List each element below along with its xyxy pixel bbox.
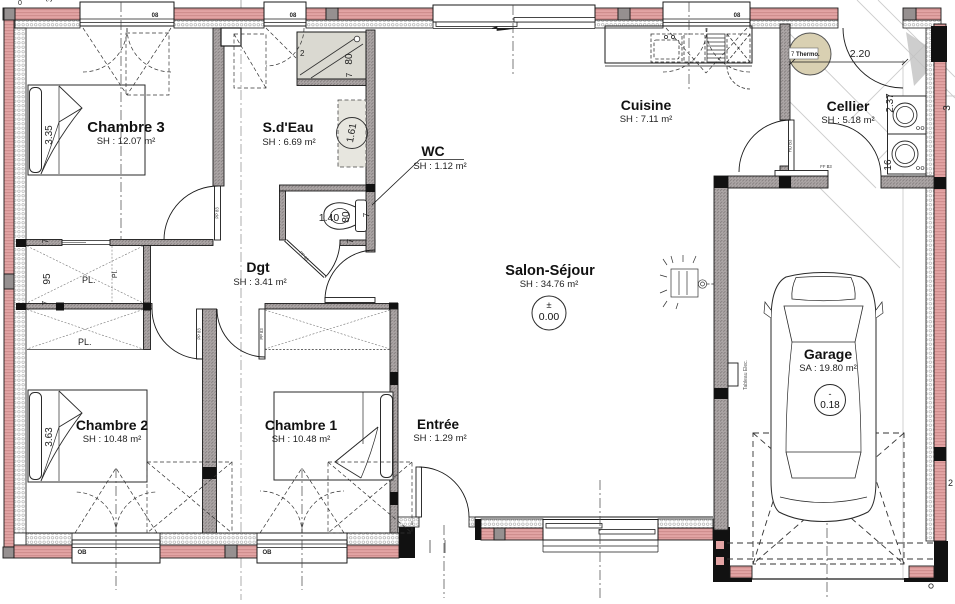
- svg-text:SH : 12.07 m²: SH : 12.07 m²: [97, 136, 156, 147]
- svg-text:Salon-Séjour: Salon-Séjour: [505, 263, 595, 279]
- svg-text:Chambre 1: Chambre 1: [265, 417, 338, 433]
- svg-text:PP 83: PP 83: [197, 328, 202, 340]
- svg-text:Garage: Garage: [804, 346, 852, 362]
- svg-text:08: 08: [152, 13, 159, 19]
- svg-text:7: 7: [345, 72, 354, 77]
- svg-text:2.20: 2.20: [850, 48, 871, 60]
- svg-text:80: 80: [344, 53, 355, 65]
- svg-text:08: 08: [734, 13, 741, 19]
- svg-text:SH : 6.69 m²: SH : 6.69 m²: [262, 137, 315, 148]
- svg-text:0: 0: [18, 0, 22, 7]
- svg-text:16: 16: [883, 159, 894, 171]
- svg-text:2: 2: [300, 49, 305, 58]
- svg-text:SA : 19.80 m²: SA : 19.80 m²: [799, 363, 857, 374]
- svg-text:SH : 3.41 m²: SH : 3.41 m²: [233, 277, 286, 288]
- svg-text:7 Thermo.: 7 Thermo.: [791, 52, 820, 58]
- svg-text:80: 80: [341, 211, 352, 223]
- svg-text:PL.: PL.: [82, 275, 96, 285]
- svg-text:Entrée: Entrée: [417, 417, 460, 432]
- svg-text:7: 7: [41, 238, 50, 243]
- svg-text:PP 83: PP 83: [215, 207, 220, 219]
- svg-text:SH : 34.76 m²: SH : 34.76 m²: [520, 279, 579, 290]
- svg-text:FF B3: FF B3: [820, 164, 832, 169]
- svg-text:7: 7: [346, 238, 355, 243]
- svg-text:2.37: 2.37: [885, 93, 896, 113]
- svg-text:1.40: 1.40: [319, 212, 340, 224]
- svg-text:Chambre 2: Chambre 2: [76, 417, 149, 433]
- svg-text:SH : 1.29 m²: SH : 1.29 m²: [413, 433, 466, 444]
- svg-text:Chambre 3: Chambre 3: [87, 119, 165, 136]
- svg-text:WC: WC: [421, 143, 444, 159]
- svg-text:0.00: 0.00: [539, 311, 560, 323]
- svg-text:Cellier: Cellier: [827, 98, 870, 114]
- svg-text:S.d'Eau: S.d'Eau: [263, 119, 314, 135]
- svg-text:PP 83: PP 83: [259, 328, 264, 340]
- svg-text:SH : 1.12 m²: SH : 1.12 m²: [413, 161, 466, 172]
- svg-text:SH : 7.11 m²: SH : 7.11 m²: [620, 114, 673, 125]
- svg-text:HO B3: HO B3: [788, 139, 793, 152]
- svg-text:Dgt: Dgt: [246, 259, 270, 275]
- svg-text:SH : 10.48 m²: SH : 10.48 m²: [272, 434, 331, 445]
- svg-text:3.63: 3.63: [44, 427, 55, 447]
- svg-text:Pl.: Pl.: [112, 270, 119, 278]
- svg-text:3: 3: [942, 105, 953, 111]
- svg-text:SH : 10.48 m²: SH : 10.48 m²: [83, 434, 142, 445]
- svg-text:PL.: PL.: [78, 337, 92, 347]
- svg-text:7: 7: [362, 212, 371, 217]
- svg-text:3: 3: [45, 0, 54, 2]
- svg-text:95: 95: [42, 273, 53, 285]
- svg-text:08: 08: [290, 13, 297, 19]
- svg-text:SH : 5.18 m²: SH : 5.18 m²: [821, 115, 874, 126]
- svg-text:-: -: [829, 389, 832, 399]
- svg-text:3.35: 3.35: [44, 125, 55, 145]
- svg-text:±: ±: [546, 300, 551, 311]
- svg-text:0.18: 0.18: [820, 400, 840, 411]
- svg-text:2: 2: [948, 478, 953, 488]
- svg-text:Tableau Elec.: Tableau Elec.: [743, 360, 749, 390]
- svg-text:OB: OB: [78, 550, 88, 556]
- svg-text:OB: OB: [263, 550, 273, 556]
- svg-text:Cuisine: Cuisine: [621, 97, 672, 113]
- svg-text:7: 7: [41, 300, 50, 305]
